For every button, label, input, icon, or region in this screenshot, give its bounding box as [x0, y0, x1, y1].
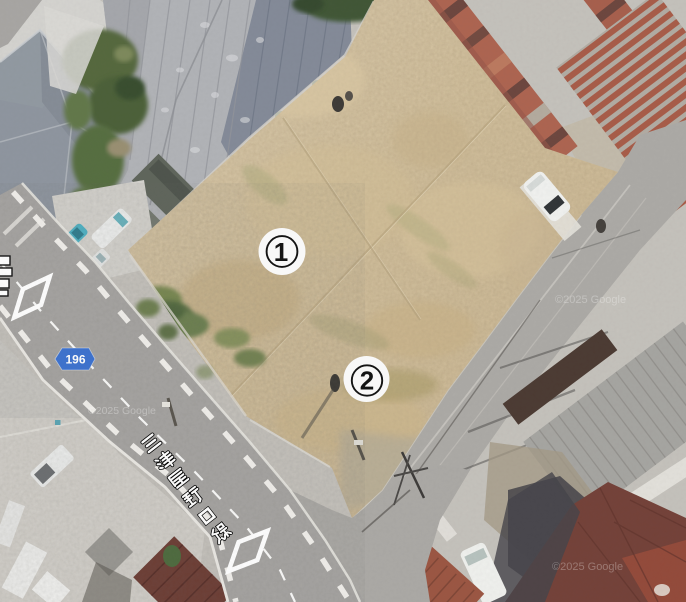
svg-text:©2025 Google: ©2025 Google: [88, 405, 156, 417]
svg-text:©2025 Google: ©2025 Google: [552, 561, 623, 573]
svg-text:©2025 Google: ©2025 Google: [555, 294, 626, 306]
svg-text:2: 2: [360, 366, 374, 396]
svg-text:1: 1: [274, 237, 288, 267]
